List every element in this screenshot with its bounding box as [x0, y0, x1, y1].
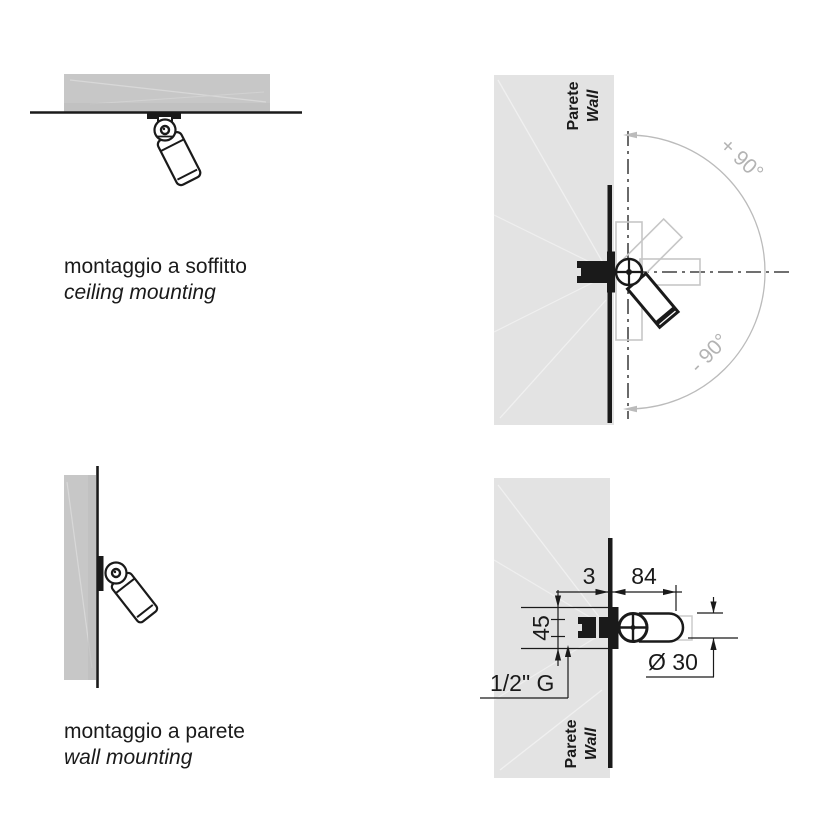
wall-label-english: Wall	[585, 89, 602, 122]
dim-3-label: 3	[583, 563, 596, 589]
wall-spotlight	[99, 556, 159, 624]
mounting-bracket	[99, 556, 104, 591]
caption-english: ceiling mounting	[64, 280, 247, 306]
ceiling-spotlight	[147, 113, 202, 187]
wall-line	[608, 185, 613, 423]
pivot-screw	[161, 126, 169, 134]
wall-line	[608, 538, 613, 768]
threaded-stem	[578, 617, 609, 638]
dim-45-label: 45	[528, 615, 554, 641]
dim-thread-label: 1/2" G	[490, 670, 554, 696]
slab-edge-band	[88, 475, 96, 680]
threaded-stem	[577, 261, 608, 283]
technical-diagram-page: Parete Wall + 90° - 90°	[0, 0, 813, 840]
stem-notch	[578, 624, 582, 631]
ceiling-mounting-diagram	[30, 74, 302, 187]
dimension-diagram: Parete Wall 3 84	[480, 478, 738, 778]
wall-label-italian: Parete	[565, 81, 582, 130]
stem-slit	[596, 617, 599, 638]
wall-label-italian: Parete	[563, 719, 580, 768]
dim-diameter-label: Ø 30	[648, 649, 698, 675]
pivot-screw	[112, 569, 120, 577]
caption-italian: montaggio a parete	[64, 719, 245, 745]
dim-arrow-right	[663, 589, 676, 595]
rotation-diagram: Parete Wall + 90° - 90°	[494, 75, 791, 425]
stem-notch	[577, 268, 581, 276]
dim-arrow-down	[710, 602, 716, 614]
wall-label-english: Wall	[583, 727, 600, 760]
arc-arrow-top	[623, 132, 637, 138]
mounting-plate	[607, 252, 615, 293]
pivot-screw-dot	[163, 128, 165, 130]
ball-center-dot	[626, 269, 632, 275]
dim-arrow-up	[710, 638, 716, 650]
angle-minus-label: - 90°	[686, 329, 734, 377]
dim-84-label: 84	[631, 563, 657, 589]
wall-mounting-diagram	[64, 466, 159, 688]
caption-english: wall mounting	[64, 745, 245, 771]
slab-edge-band	[64, 103, 270, 112]
caption-italian: montaggio a soffitto	[64, 254, 247, 280]
ceiling-mounting-caption: montaggio a soffitto ceiling mounting	[64, 254, 247, 306]
dim-arrow-left	[613, 589, 626, 595]
angle-plus-label: + 90°	[715, 134, 767, 185]
pivot-screw-dot	[114, 571, 116, 573]
ball-center-dot	[631, 625, 636, 630]
diagram-canvas: Parete Wall + 90° - 90°	[0, 0, 813, 840]
wall-mounting-caption: montaggio a parete wall mounting	[64, 719, 245, 771]
arc-arrow-bottom	[623, 406, 637, 412]
